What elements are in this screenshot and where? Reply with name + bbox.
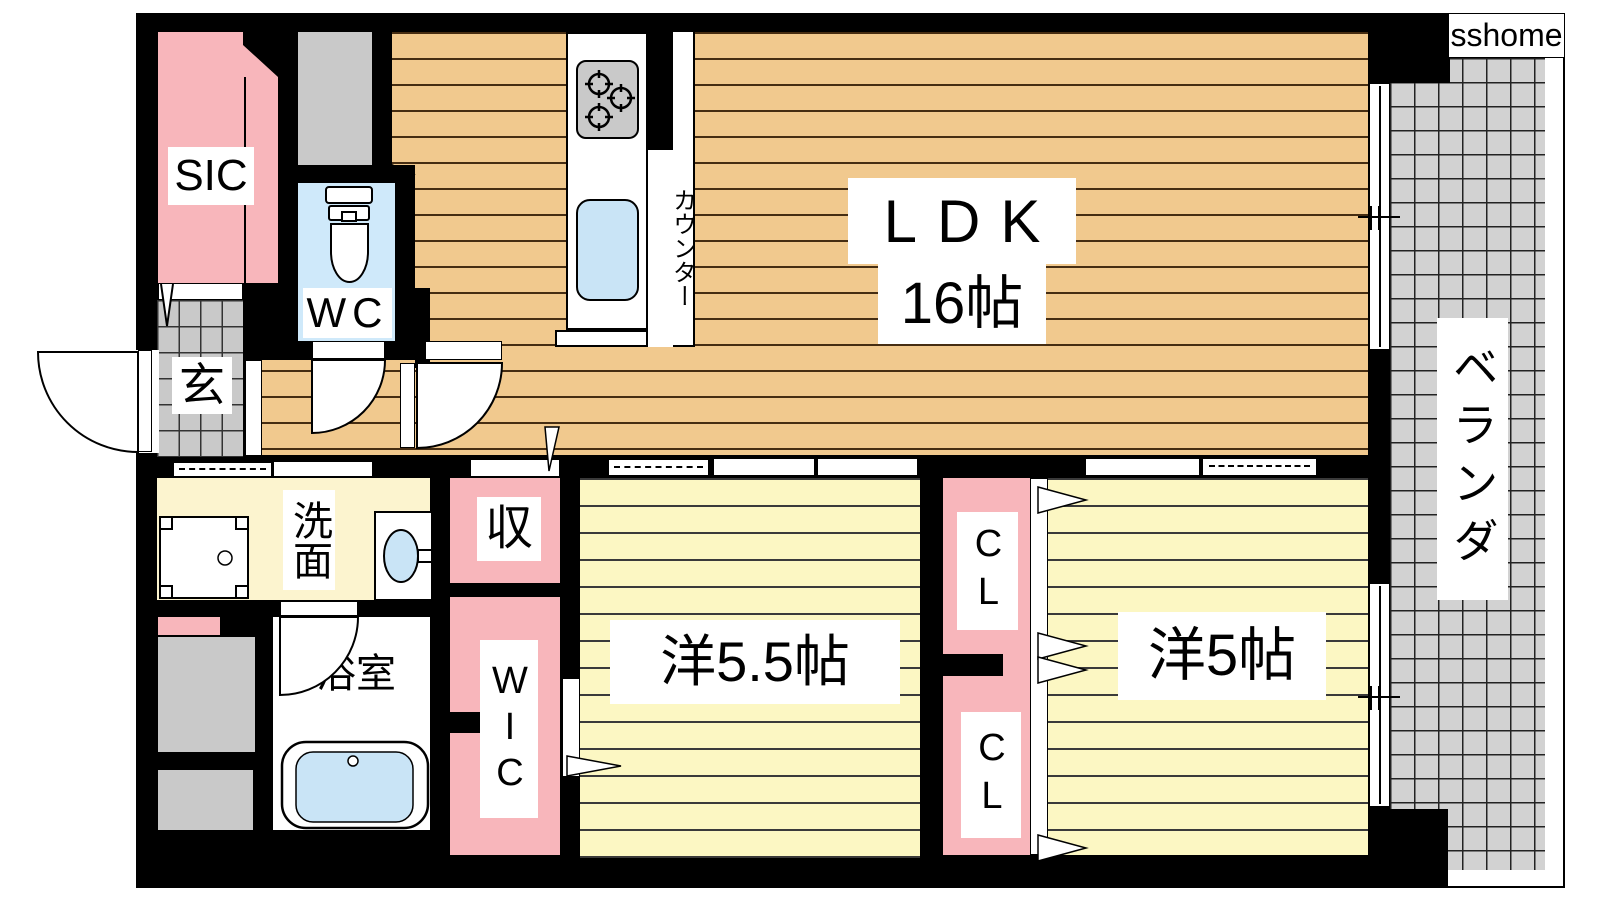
front-door-leaf — [138, 350, 152, 452]
closet-divider — [941, 654, 1003, 676]
wic-door-leaf — [562, 678, 580, 777]
wc-label-text: WC — [307, 291, 389, 335]
wic-wall-stub — [440, 712, 480, 733]
logo-text: sshome — [1450, 19, 1562, 53]
washroom-door-panel — [273, 461, 373, 477]
closet-lower-text: CL — [971, 727, 1011, 823]
counter-label: カウンター — [664, 150, 700, 345]
washroom-label: 洗面 — [283, 490, 335, 590]
front-door-swing-icon — [38, 352, 138, 452]
storage-opening — [470, 459, 560, 477]
logo-box: sshome — [1448, 13, 1565, 58]
ldk-window — [1369, 83, 1390, 350]
closet-door-strip — [1030, 478, 1048, 855]
bedroom1-panel-3 — [817, 458, 918, 476]
ldk-floor — [262, 32, 1368, 455]
bedroom1-panel-2 — [713, 458, 815, 476]
wc-door-leaf — [312, 341, 385, 359]
entrance-label: 玄 — [172, 357, 232, 414]
ldk-label-text: LDK — [864, 190, 1061, 253]
ldk-window-line — [1379, 86, 1381, 347]
bedroom2-sliding-dash — [1209, 465, 1311, 467]
kitchen-wall-bar — [648, 32, 673, 150]
bedroom1-sliding-door — [608, 459, 709, 476]
bedroom2-sliding-door — [1202, 458, 1317, 476]
pipe-space-box — [298, 32, 372, 165]
bedroom1-label: 洋5.5帖 — [610, 620, 900, 704]
hall-opening-bar — [425, 341, 502, 360]
ldk-size-label: 16帖 — [878, 264, 1046, 344]
entrance-step-door — [173, 462, 272, 477]
bathroom-label-text: 浴室 — [316, 653, 396, 695]
bedroom2-label-text: 洋5帖 — [1148, 626, 1296, 687]
bedroom2-window — [1369, 583, 1390, 807]
pillar-bottom-right — [1370, 809, 1448, 888]
wc-label: WC — [303, 288, 392, 338]
bedroom2-label: 洋5帖 — [1118, 612, 1326, 700]
hall-door-leaf — [400, 363, 415, 448]
meter-box-2 — [158, 770, 253, 830]
bedroom2-panel-1 — [1085, 458, 1200, 476]
bath-door-leaf — [280, 601, 358, 616]
wic-label-text: WIC — [489, 660, 529, 798]
entrance-label-text: 玄 — [179, 361, 225, 409]
counter-label-text: カウンター — [665, 188, 700, 308]
storage-label-text: 収 — [485, 504, 533, 554]
wall-wc-right — [392, 165, 415, 360]
linen-strip — [158, 617, 220, 635]
kitchen-step — [555, 330, 648, 347]
closet-lower-label: CL — [961, 712, 1021, 838]
veranda-label-text: ベランダ — [1448, 343, 1496, 575]
bedroom2-window-line — [1379, 586, 1381, 804]
closet-upper-label: CL — [957, 512, 1018, 630]
floor-plan: ベランダ sshome カウンター SIC WC 玄 LDK 16帖 洗面 — [0, 0, 1600, 900]
storage-label: 収 — [477, 497, 541, 561]
closet-upper-text: CL — [968, 523, 1008, 619]
entrance-trim — [245, 360, 262, 456]
bedroom1-label-text: 洋5.5帖 — [660, 633, 850, 692]
ldk-label: LDK — [848, 178, 1076, 264]
pillar-top-right — [1370, 13, 1450, 83]
sic-label: SIC — [168, 147, 254, 205]
kitchen-unit — [566, 32, 648, 330]
ldk-size-text: 16帖 — [901, 274, 1024, 335]
bathroom-label: 浴室 — [310, 648, 402, 700]
bedroom1-sliding-dash — [614, 466, 703, 468]
sic-step — [158, 283, 243, 300]
sic-label-text: SIC — [174, 153, 247, 199]
washroom-label-text: 洗面 — [288, 500, 330, 580]
meter-box-1 — [158, 637, 255, 752]
wic-label: WIC — [480, 640, 538, 818]
entrance-step-door-dash — [179, 468, 266, 470]
veranda-label: ベランダ — [1437, 318, 1508, 600]
